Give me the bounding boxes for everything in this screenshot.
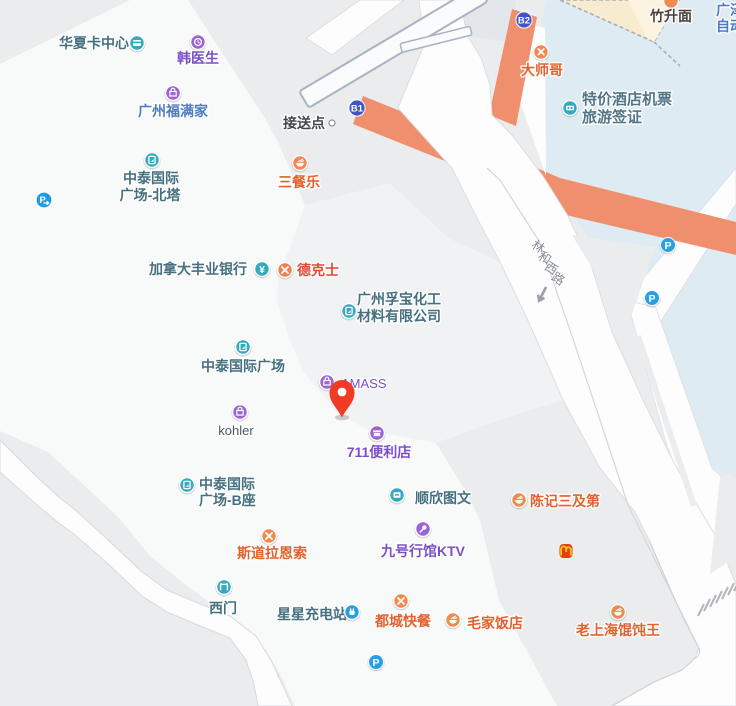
svg-text:毛家饭店: 毛家饭店 — [467, 615, 523, 631]
svg-text:广场-B座: 广场-B座 — [199, 492, 256, 508]
svg-text:广州孚宝化工: 广州孚宝化工 — [357, 291, 441, 307]
svg-text:711便利店: 711便利店 — [347, 444, 412, 460]
svg-text:三餐乐: 三餐乐 — [278, 174, 320, 190]
svg-text:陈记三及第: 陈记三及第 — [530, 493, 600, 509]
svg-text:旅游签证: 旅游签证 — [582, 108, 642, 126]
svg-text:接送点: 接送点 — [283, 115, 325, 131]
svg-text:竹升面: 竹升面 — [649, 8, 692, 24]
svg-text:德克士: 德克士 — [297, 262, 339, 278]
svg-text:广州福满家: 广州福满家 — [138, 103, 209, 119]
svg-text:顺欣图文: 顺欣图文 — [415, 490, 472, 506]
svg-text:广泽: 广泽 — [716, 2, 736, 18]
svg-text:自动: 自动 — [716, 18, 736, 34]
svg-text:¥: ¥ — [259, 265, 265, 276]
svg-text:P: P — [648, 293, 655, 305]
svg-text:B1: B1 — [351, 103, 364, 114]
svg-text:老上海馄饨王: 老上海馄饨王 — [576, 622, 660, 638]
svg-text:韩医生: 韩医生 — [177, 50, 219, 66]
svg-text:大师哥: 大师哥 — [521, 62, 563, 78]
svg-text:中泰国际: 中泰国际 — [199, 476, 255, 492]
svg-text:特价酒店机票: 特价酒店机票 — [582, 90, 672, 108]
svg-text:华夏卡中心: 华夏卡中心 — [59, 35, 129, 51]
svg-text:中泰国际: 中泰国际 — [123, 170, 179, 186]
svg-text:九号行馆KTV: 九号行馆KTV — [380, 543, 466, 559]
svg-text:加拿大丰业银行: 加拿大丰业银行 — [148, 261, 247, 277]
svg-text:B2: B2 — [518, 15, 530, 26]
svg-text:都城快餐: 都城快餐 — [374, 613, 432, 629]
svg-text:西门: 西门 — [209, 600, 237, 616]
svg-text:P: P — [40, 195, 47, 206]
svg-text:kohler: kohler — [218, 423, 254, 438]
svg-text:广场-北塔: 广场-北塔 — [120, 187, 182, 203]
svg-text:P: P — [664, 240, 671, 252]
svg-text:中泰国际广场: 中泰国际广场 — [201, 358, 285, 374]
svg-text:斯道拉恩索: 斯道拉恩索 — [237, 545, 307, 561]
svg-text:P: P — [372, 657, 379, 669]
svg-text:星星充电站: 星星充电站 — [277, 606, 347, 622]
svg-text:材料有限公司: 材料有限公司 — [357, 308, 441, 324]
